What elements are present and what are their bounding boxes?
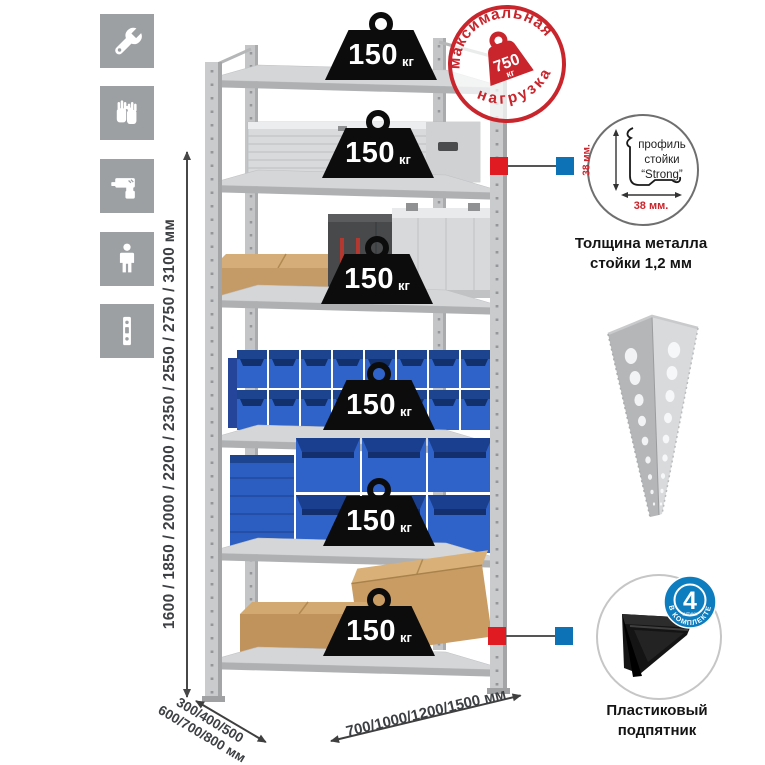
perforated-post-image [602, 310, 702, 525]
connector-red-square-top [490, 157, 508, 175]
rack-post-icon [100, 304, 154, 358]
connector-blue-square-bottom [555, 627, 573, 645]
wrench-icon [100, 14, 154, 68]
kit-count-badge: 4 штуки в комплекте [662, 574, 718, 630]
profile-detail-circle: профиль стойки “Strong” 38 мм. 38 мм. [587, 114, 699, 226]
shelf-load-weight: 150кг [321, 236, 433, 304]
height-dimension-line [186, 152, 188, 697]
connector-line-bottom [506, 635, 555, 637]
shelf-load-weight: 150кг [323, 478, 435, 546]
person-icon [100, 232, 154, 286]
connector-line-top [508, 165, 556, 167]
shelf-load-weight: 150кг [323, 362, 435, 430]
profile-label: профиль стойки “Strong” [633, 138, 691, 183]
svg-text:штуки: штуки [682, 612, 697, 618]
shelf-load-weight: 150кг [325, 12, 437, 80]
gloves-icon [100, 86, 154, 140]
infographic-canvas: 1600 / 1850 / 2000 / 2200 / 2350 / 2550 … [0, 0, 765, 765]
connector-blue-square-top [556, 157, 574, 175]
profile-dim-bottom: 38 мм. [623, 200, 679, 212]
shelf-load-weight: 150кг [323, 588, 435, 656]
connector-red-square-bottom [488, 627, 506, 645]
max-load-stamp: максимальная нагрузка 750 кг [437, 0, 577, 134]
shelf-load-weight: 150кг [322, 110, 434, 178]
drill-icon [100, 159, 154, 213]
foot-caption: Пластиковый подпятник [569, 701, 745, 742]
profile-caption: Толщина металла стойки 1,2 мм [553, 234, 729, 275]
